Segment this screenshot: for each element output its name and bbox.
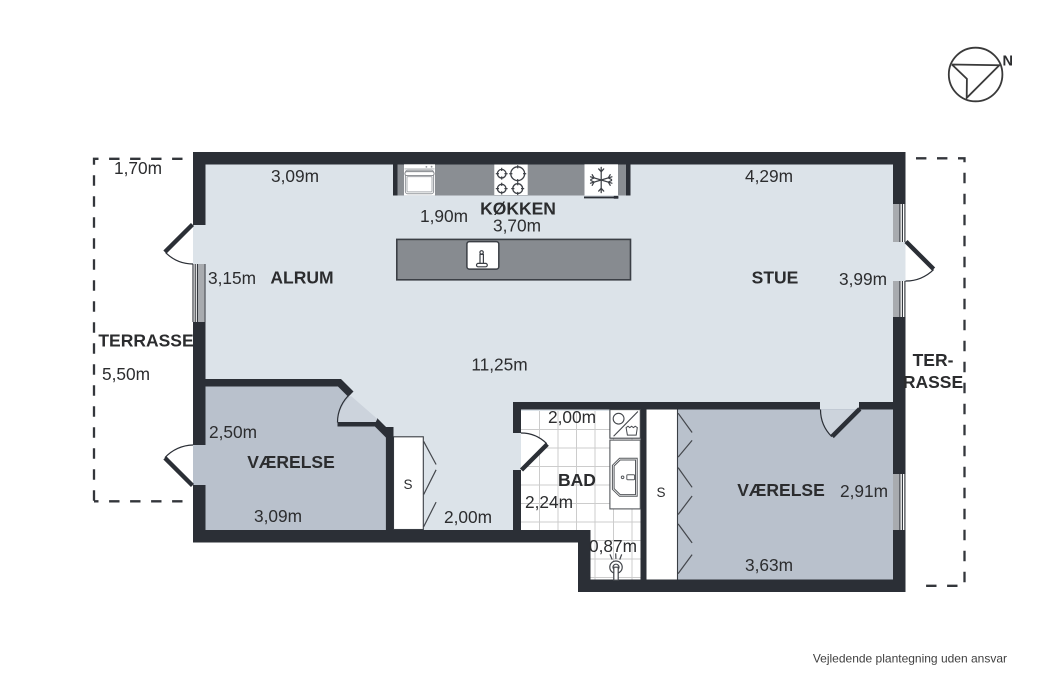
- svg-text:3,09m: 3,09m: [254, 506, 302, 526]
- svg-text:S: S: [403, 477, 412, 492]
- svg-text:VÆRELSE: VÆRELSE: [247, 452, 335, 472]
- svg-text:ALRUM: ALRUM: [270, 267, 333, 287]
- svg-text:4,29m: 4,29m: [745, 166, 793, 186]
- svg-text:2,91m: 2,91m: [840, 481, 888, 501]
- svg-text:TER-: TER-: [913, 350, 954, 370]
- svg-text:1,70m: 1,70m: [114, 158, 162, 178]
- svg-text:3,63m: 3,63m: [745, 555, 793, 575]
- svg-text:3,09m: 3,09m: [271, 166, 319, 186]
- svg-text:3,99m: 3,99m: [839, 269, 887, 289]
- svg-text:2,00m: 2,00m: [548, 407, 596, 427]
- svg-text:S: S: [656, 485, 665, 500]
- svg-text:2,24m: 2,24m: [525, 492, 573, 512]
- svg-text:RASSE: RASSE: [903, 372, 963, 392]
- svg-text:Vejledende plantegning uden an: Vejledende plantegning uden ansvar: [813, 652, 1007, 666]
- svg-text:VÆRELSE: VÆRELSE: [737, 480, 825, 500]
- svg-text:5,50m: 5,50m: [102, 364, 150, 384]
- svg-text:BAD: BAD: [558, 470, 596, 490]
- svg-text:TERRASSE: TERRASSE: [98, 331, 193, 351]
- svg-text:2,00m: 2,00m: [444, 507, 492, 527]
- svg-text:11,25m: 11,25m: [471, 355, 527, 375]
- svg-text:2,50m: 2,50m: [209, 422, 257, 442]
- svg-text:STUE: STUE: [752, 267, 799, 287]
- svg-text:3,70m: 3,70m: [493, 216, 541, 236]
- svg-text:1,90m: 1,90m: [420, 206, 468, 226]
- svg-text:0,87m: 0,87m: [589, 536, 637, 556]
- svg-text:N: N: [1003, 54, 1013, 70]
- svg-text:3,15m: 3,15m: [208, 268, 256, 288]
